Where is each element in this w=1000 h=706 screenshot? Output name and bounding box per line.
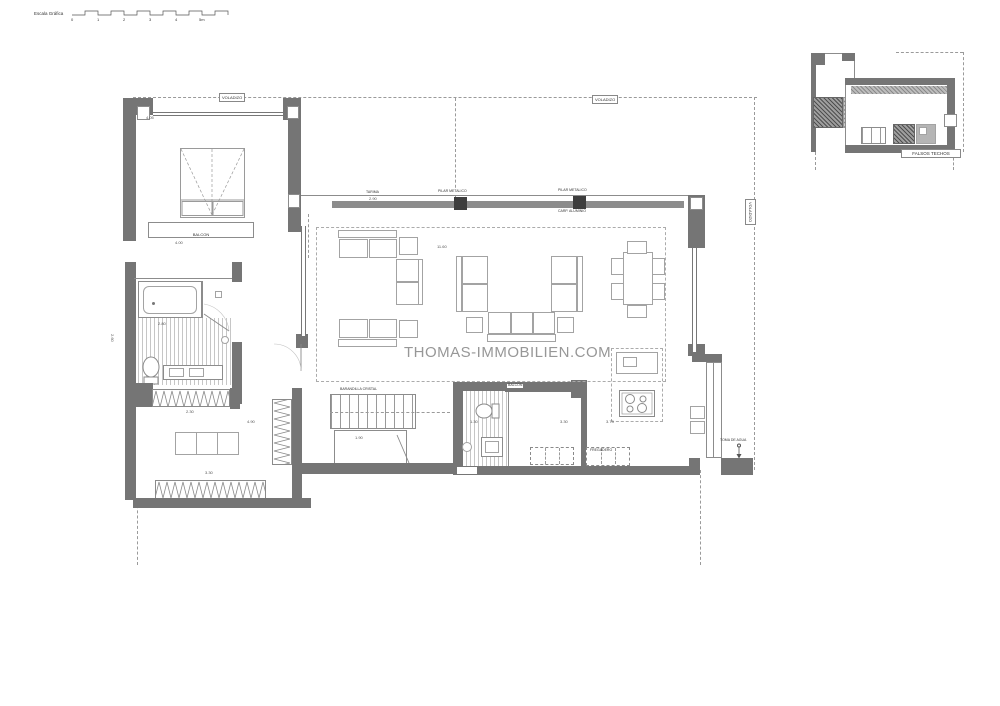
inset-title: FALSOS TECHOS [901,149,961,158]
sofa-back [418,259,423,305]
sofa-seat [551,284,577,312]
inset-wall [842,53,855,61]
sofa-seat [551,256,577,284]
fregadero-label: FREGADERO [590,449,612,453]
scale-tick: 0 [71,17,74,22]
shower-drain [215,291,222,298]
side-table [399,237,418,255]
dimension: 2.60 [110,334,114,342]
appliance [690,421,705,434]
inset-dashed-top [896,52,963,53]
cooktop [619,390,655,417]
sofa-seat [396,259,419,282]
voladizo-label-1: VOLADIZO [219,93,245,102]
scale-tick: 2 [123,17,126,22]
vanity-sink [189,368,204,377]
stairs-centerline [330,412,450,413]
scale-tick: 4 [175,17,178,22]
side-table [557,317,574,333]
dining-chair [627,241,647,254]
bedroom-window [153,112,283,116]
dashed-line-bottom-left [137,500,138,565]
sofa-back [487,334,556,342]
bathtub-drain [152,302,155,305]
vanity-sink [169,368,184,377]
sofa-back [338,230,397,238]
living-west-window [301,226,306,336]
tarima-label: TARIMA [366,191,379,195]
scale-bar-label: Escala Gráfica [34,11,64,16]
wall-segment [125,407,136,500]
living-door [272,342,304,374]
scale-tick: 1 [97,17,100,22]
dimension: 4.00 [175,241,183,245]
bedroom-balcony: BALCON [148,222,254,238]
bathtub-inner [143,286,197,314]
bed [180,148,245,218]
sofa-seat [533,312,555,334]
dining-chair [611,283,624,300]
side-table [466,317,483,333]
corner-window [287,106,299,119]
corner-window [690,197,703,210]
sink-2-basin [485,441,499,453]
scale-tick: 5m [199,17,205,22]
wall-segment [133,498,311,508]
wall-line [508,391,509,467]
voladizo-label-2: VOLADIZO [592,95,618,104]
wall-segment [125,383,153,407]
dining-table [623,252,653,305]
cabinet-divider [559,448,560,464]
sofa-back [338,339,397,347]
stairs-room-door [394,432,412,466]
wall-line [134,278,242,279]
wall-segment [230,388,240,409]
wall-segment [571,380,587,398]
inset-ceiling-band [851,86,947,94]
dimension: 2.30 [186,410,194,414]
carpentry-label: CARP. ALUMINIO [558,210,586,214]
dining-chair [652,258,665,275]
dimension: 1.90 [355,436,363,440]
balcony-label-2: BALCON [507,384,523,388]
sofa-seat [488,312,511,334]
wall-segment [721,458,753,475]
dimension: 1.30 [470,420,478,424]
beam-line [301,195,688,196]
dimension: 3.73 [606,420,614,424]
wall-segment [123,98,136,241]
appliance [690,406,705,419]
sofa-seat [369,319,397,338]
wall-segment [125,262,136,385]
wall-segment [232,262,242,282]
watermark-text: THOMAS-IMMOBILIEN.COM [404,344,611,361]
island-dresser [196,432,218,455]
wardrobe-zigzag-top [152,389,230,407]
sofa-seat [462,284,488,312]
inset-notch [944,114,957,127]
dimension: 11.60 [437,245,447,249]
dining-chair [627,305,647,318]
inset-dashed-right [963,52,964,152]
dashed-boundary-right [754,97,755,470]
cabinet-divider [545,448,546,464]
dimension: 2.80 [158,322,166,326]
water-intake-label: TOMA DE AGUA [720,439,746,443]
toilet [141,356,161,386]
dimension: 2.90 [369,197,377,201]
steel-pillar [454,197,467,210]
dimension: 4.90 [247,420,255,424]
wardrobe-zigzag-bottom [155,480,266,500]
glass-railing-label: BARANDILLA CRISTAL [340,388,377,392]
inset-dashed-bl [815,152,816,170]
wall-window [288,194,300,208]
island-dresser [175,432,197,455]
pillar-label: PILAR METALICO [558,189,587,193]
wall-segment [689,458,700,475]
dashed-line-balcony [308,214,309,258]
counter-line [713,362,714,458]
floor-drain [221,336,229,344]
inset-bath-ceiling [813,97,843,128]
dimension: 4.05 [146,116,154,120]
sofa-seat [511,312,533,334]
sofa-seat [396,282,419,305]
bathroom-door [200,300,236,336]
door-opening [457,467,477,474]
dashed-line-pillar [455,98,456,198]
wardrobe-zigzag-right [272,399,292,465]
wall-segment [288,120,301,232]
dining-chair [611,258,624,275]
kitchen-cabinet [530,447,574,465]
scale-bar: Escala Gráfica 0 1 2 3 4 5m [30,4,260,22]
steel-pillar [573,196,586,209]
sofa-seat [369,239,397,258]
dimension: 3.30 [560,420,568,424]
dimension: 3.30 [205,471,213,475]
living-east-window [692,248,697,352]
toilet-2 [475,402,501,420]
wall-segment [453,466,693,475]
inset-kitchen-ceiling [893,124,915,144]
dashed-line-bottom-right [700,470,701,565]
scale-bar-steps [72,11,228,15]
inset-stairs [861,127,886,144]
voladizo-label-3: VOLADIZO [745,199,756,225]
sofa-back [577,256,583,312]
dining-chair [652,283,665,300]
island-dresser [217,432,239,455]
wall-segment [453,382,463,467]
inset-kitchen-detail [919,127,927,135]
cabinet-divider [615,448,616,464]
sofa-seat [462,256,488,284]
floor-plan-canvas: Escala Gráfica 0 1 2 3 4 5m VOLADIZO VOL… [0,0,1000,706]
sofa-seat [339,239,368,258]
wall-segment [453,382,510,391]
kitchen-counter-right [706,362,722,458]
inset-wall [845,78,953,85]
pillar-label: PILAR METALICO [438,190,467,194]
floor-drain [462,442,472,452]
side-table [399,320,418,338]
scale-tick: 3 [149,17,152,22]
wall-segment [292,388,302,500]
sliding-door-track [332,201,684,208]
sofa-seat [339,319,368,338]
wall-segment [300,463,462,474]
inset-wall [947,78,955,146]
water-intake-symbol [733,443,745,459]
balcony-label: BALCON [193,232,209,237]
